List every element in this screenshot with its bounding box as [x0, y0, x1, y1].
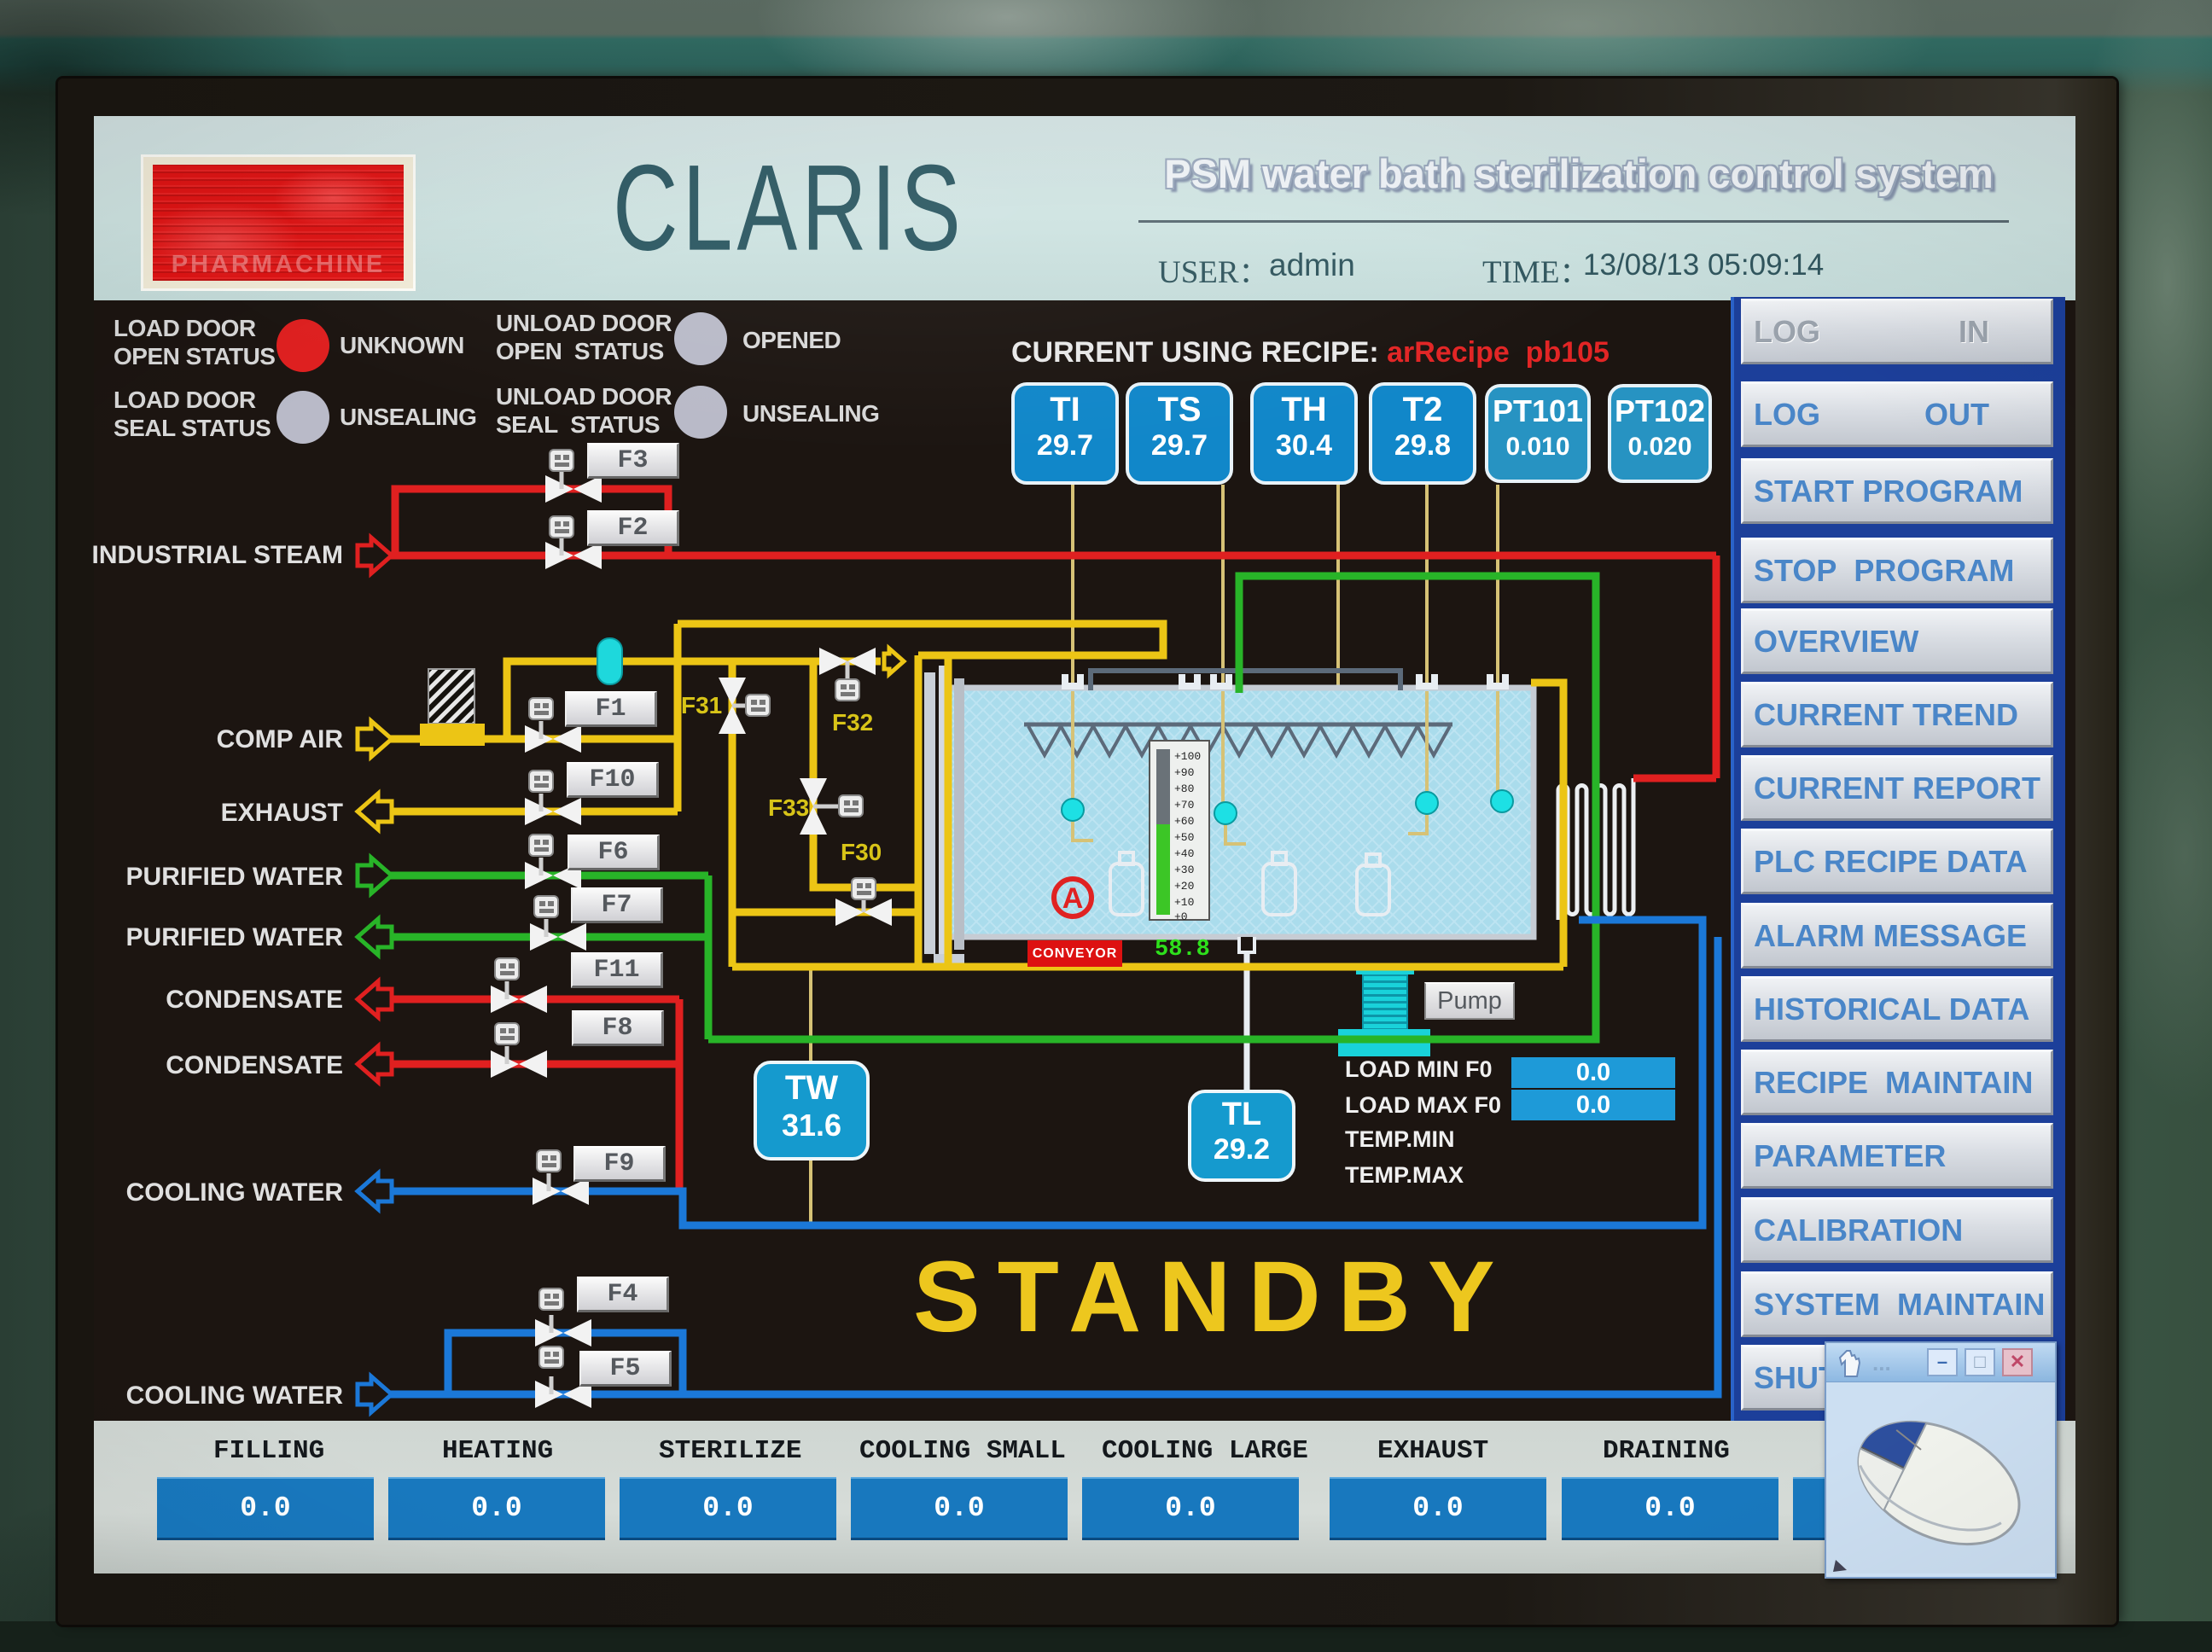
svg-text:+80: +80	[1174, 782, 1194, 795]
svg-text:+10: +10	[1174, 896, 1194, 909]
svg-text:F33: F33	[768, 794, 809, 821]
svg-text:+0: +0	[1174, 910, 1188, 923]
svg-text:F30: F30	[841, 839, 882, 865]
svg-text:A: A	[1062, 882, 1084, 915]
svg-text:F31: F31	[681, 692, 722, 718]
svg-text:+90: +90	[1174, 766, 1194, 779]
svg-text:+60: +60	[1174, 815, 1194, 828]
svg-text:+50: +50	[1174, 831, 1194, 844]
svg-text:+30: +30	[1174, 864, 1194, 876]
svg-text:+40: +40	[1174, 847, 1194, 860]
svg-text:+100: +100	[1174, 750, 1201, 763]
svg-text:F32: F32	[832, 709, 873, 736]
svg-text:+20: +20	[1174, 880, 1194, 893]
svg-text:+70: +70	[1174, 799, 1194, 811]
